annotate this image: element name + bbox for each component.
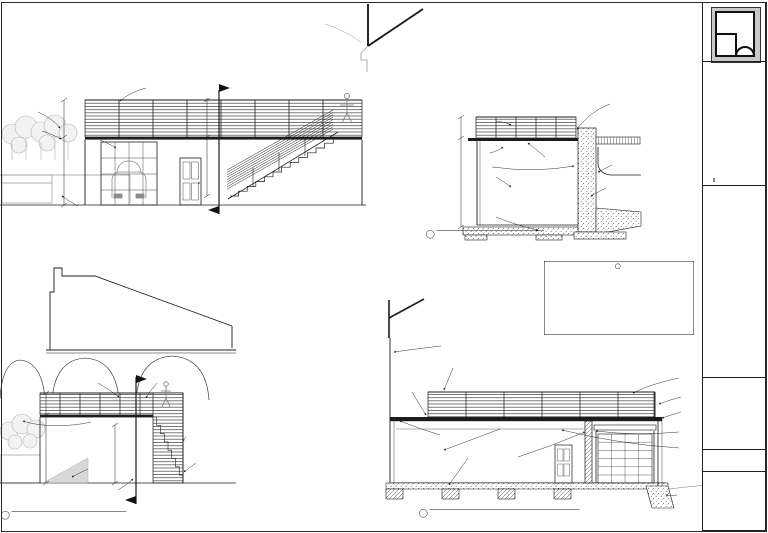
firm-logo [711, 7, 761, 63]
detail-number-circle [419, 509, 428, 518]
firm-logo-icon [712, 8, 758, 60]
sheet-contents-panel [708, 377, 763, 449]
drawing-title [437, 230, 545, 231]
project-title-panel [708, 185, 763, 377]
project-data-header [714, 178, 715, 182]
drawing-title [12, 511, 127, 512]
drawing-title [430, 509, 580, 510]
title-section-bb [419, 509, 740, 526]
architectural-sheet [0, 0, 768, 533]
title-block [702, 2, 766, 531]
sheet-number-panel [708, 471, 763, 530]
project-data-panel [708, 61, 764, 185]
title-exterior-elevations [1, 511, 252, 528]
detail-number-circle [426, 230, 435, 239]
door-schedule [544, 261, 694, 335]
title-block-fields [708, 449, 763, 471]
door-symbol-circle-icon [615, 264, 621, 270]
detail-number-circle [1, 511, 10, 520]
title-section-aa [426, 230, 662, 247]
